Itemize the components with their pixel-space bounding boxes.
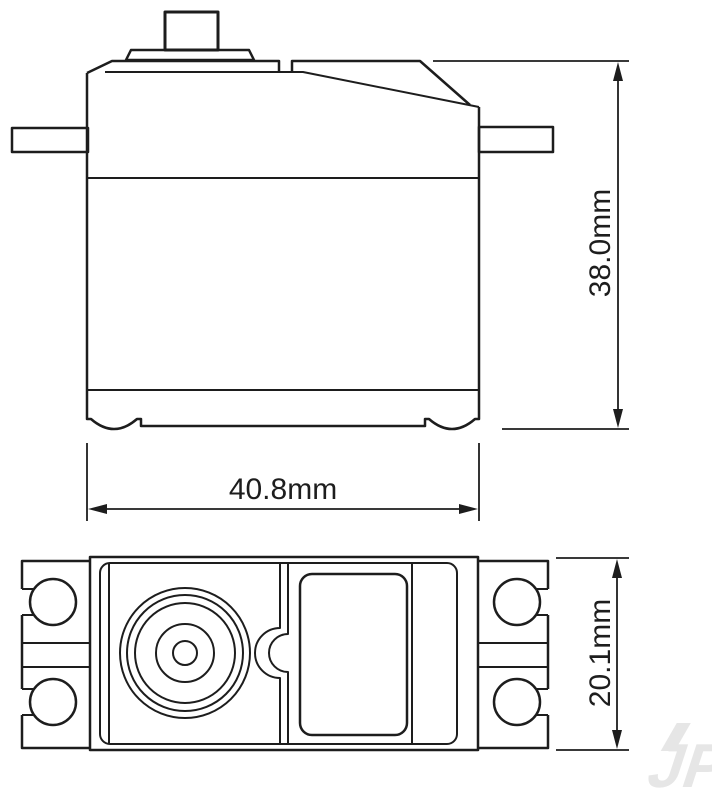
arrowhead-right <box>459 504 478 514</box>
side-view <box>12 12 553 429</box>
gear-ring-1 <box>120 588 250 718</box>
tab-seam-lines <box>478 643 548 667</box>
jp-watermark: JP <box>640 723 712 800</box>
screw-hole-top <box>30 579 76 625</box>
motor-compartment <box>300 574 407 735</box>
body-outline <box>87 73 479 429</box>
dim-label-height: 38.0mm <box>584 189 617 297</box>
top-view <box>22 557 548 750</box>
drawing-canvas: 38.0mm 40.8mm <box>0 0 712 800</box>
output-shaft <box>165 12 218 50</box>
body-outer-rect <box>90 557 478 750</box>
mounting-flange-left <box>12 128 88 152</box>
shaft-center <box>173 641 197 665</box>
mount-tab-right <box>478 561 548 748</box>
dim-height: 38.0mm <box>433 61 629 429</box>
gear-ring-3 <box>135 603 235 703</box>
middle-seam-outer <box>255 563 280 744</box>
top-cap-right <box>292 61 470 105</box>
dim-label-depth: 20.1mm <box>584 599 617 707</box>
mounting-flange-right <box>479 127 553 152</box>
arrowhead-left <box>88 504 107 514</box>
arrowhead-down <box>613 409 623 428</box>
watermark-text: JP <box>640 731 712 800</box>
arrowhead-down <box>612 730 622 749</box>
arrowhead-up <box>612 559 622 578</box>
gear-ring-2 <box>127 595 243 711</box>
screw-slot-lines <box>22 589 34 715</box>
arrowhead-up <box>613 62 623 81</box>
mount-tab-left <box>22 561 90 748</box>
tab-seam-lines <box>22 643 90 667</box>
middle-seam-inner <box>269 563 288 744</box>
body-top-edge <box>105 72 479 107</box>
output-gear-circles <box>120 588 250 718</box>
gear-ring-4 <box>156 624 214 682</box>
dim-label-width: 40.8mm <box>229 473 337 506</box>
screw-hole-bottom <box>30 679 76 725</box>
screw-hole-top <box>494 579 540 625</box>
dim-width: 40.8mm <box>87 443 479 521</box>
servo-dimension-drawing: 38.0mm 40.8mm <box>0 0 712 800</box>
screw-hole-bottom <box>494 679 540 725</box>
dim-depth: 20.1mm <box>556 558 629 750</box>
screw-slot-lines <box>536 589 548 715</box>
body-inset-rect <box>100 563 457 744</box>
